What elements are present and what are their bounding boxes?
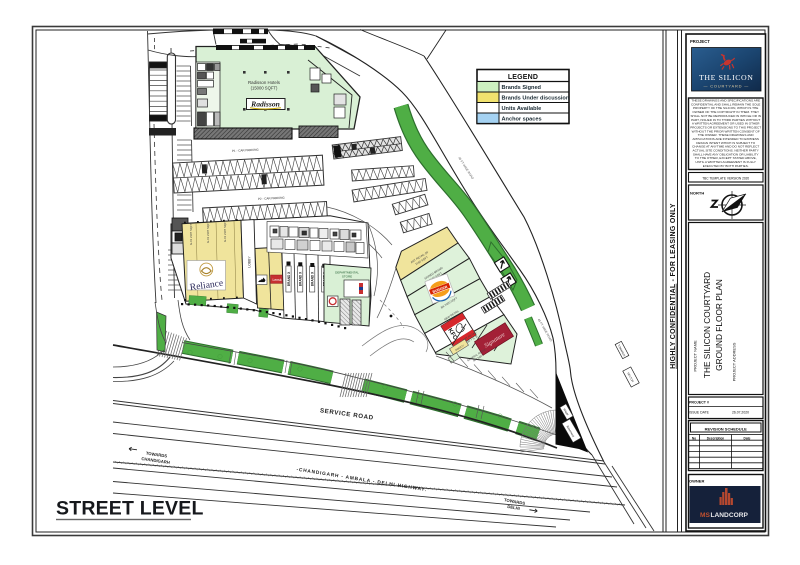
svg-text:PROJECT ADDRESS: PROJECT ADDRESS (732, 342, 737, 381)
svg-text:THE SILICON: THE SILICON (699, 73, 753, 82)
svg-text:ISSUE DATE: ISSUE DATE (689, 411, 710, 415)
svg-text:PROJECT #: PROJECT # (689, 401, 709, 405)
svg-text:Units Available: Units Available (502, 106, 542, 112)
svg-text:THE SILICON COURTYARD: THE SILICON COURTYARD (702, 272, 712, 378)
svg-text:Description: Description (707, 436, 725, 440)
svg-text:BRAND X: BRAND X (311, 271, 315, 286)
svg-text:MS: MS (700, 512, 710, 519)
svg-text:Anchor spaces: Anchor spaces (502, 117, 542, 123)
svg-text:Date: Date (744, 436, 751, 440)
svg-text:NORTH: NORTH (690, 191, 704, 196)
svg-text:G-01 2187 SQFT: G-01 2187 SQFT (206, 221, 210, 243)
svg-text:GROUND FLOOR PLAN: GROUND FLOOR PLAN (714, 279, 724, 371)
svg-text:26.07.2020: 26.07.2020 (732, 411, 749, 415)
svg-text:OWNER: OWNER (689, 479, 704, 484)
svg-text:G-01 2187 SQFT: G-01 2187 SQFT (223, 220, 227, 242)
svg-text:Brands Signed: Brands Signed (502, 85, 542, 91)
svg-text:G-01 2187 SQFT: G-01 2187 SQFT (189, 223, 193, 245)
svg-text:PROJECT: PROJECT (690, 39, 710, 44)
svg-text:BRAND X: BRAND X (287, 271, 291, 286)
svg-text:TBC TEMPLATE VERSION 2020: TBC TEMPLATE VERSION 2020 (702, 176, 749, 180)
svg-text:STREET LEVEL: STREET LEVEL (56, 498, 204, 520)
svg-text:LOBBY: LOBBY (248, 256, 252, 268)
svg-text:Radisson Hotels: Radisson Hotels (248, 80, 281, 85)
svg-text:LANDCORP: LANDCORP (711, 512, 749, 519)
svg-text:BRAND X: BRAND X (299, 271, 303, 286)
svg-text:EXECUTED BY BOTH PARTIES.: EXECUTED BY BOTH PARTIES. (703, 164, 749, 168)
svg-text:LEGEND: LEGEND (508, 74, 538, 81)
svg-text:REVISION SCHEDULE: REVISION SCHEDULE (705, 427, 748, 432)
svg-text:No: No (692, 436, 696, 440)
svg-text:— COURTYARD —: — COURTYARD — (704, 84, 750, 89)
svg-text:Lensk: Lensk (272, 278, 281, 282)
svg-text:HIGHLY CONFIDENTIAL - FOR LEAS: HIGHLY CONFIDENTIAL - FOR LEASING ONLY (670, 203, 677, 369)
svg-text:Brands Under discussion: Brands Under discussion (502, 96, 570, 102)
svg-text:STORE: STORE (342, 275, 352, 279)
svg-text:PROJECT NAME: PROJECT NAME (693, 340, 698, 372)
svg-text:Radisson: Radisson (250, 100, 280, 109)
svg-text:(15000 SQFT): (15000 SQFT) (251, 86, 278, 91)
